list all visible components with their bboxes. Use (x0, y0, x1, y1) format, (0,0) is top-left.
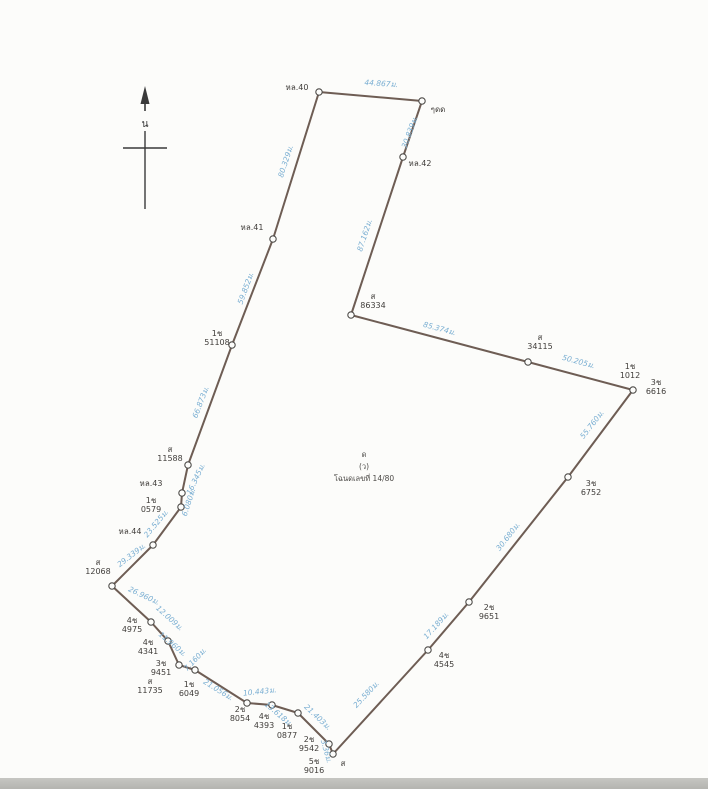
distance-label: 10.443ม. (243, 685, 277, 697)
marker-label: หล.40 (286, 83, 309, 92)
marker-label: หล.41 (241, 223, 264, 232)
survey-point (295, 710, 301, 716)
distance-label: 59.852ม. (236, 271, 256, 306)
marker-label: 4ช4975 (122, 616, 142, 634)
marker-label: ส (341, 759, 346, 768)
distance-label: 11.960ม. (157, 630, 189, 658)
marker-label: 3ช6616 (646, 378, 666, 396)
north-label: น (142, 119, 149, 130)
marker-label: 2ช9542 (299, 735, 319, 753)
survey-point (419, 98, 425, 104)
marker-label: 3ช6752 (581, 479, 601, 497)
distance-label: 55.760ม. (578, 408, 606, 440)
marker-label: 1ช1012 (620, 362, 640, 380)
parcel-boundary-lines (112, 92, 633, 754)
survey-point (400, 154, 406, 160)
marker-label: 4ช4341 (138, 638, 158, 656)
north-arrow-head-icon (141, 86, 150, 104)
survey-point (348, 312, 354, 318)
marker-label: ส86334 (360, 292, 385, 310)
distance-label: 12.009ม. (154, 604, 185, 633)
marker-label: ส12068 (85, 558, 110, 576)
distance-label: 30.680ม. (494, 520, 522, 552)
marker-label: ส11735 (137, 677, 162, 695)
survey-point (185, 462, 191, 468)
marker-label: ส11588 (157, 445, 182, 463)
marker-label: ๆดด (431, 105, 446, 114)
survey-point (109, 583, 115, 589)
scan-bottom-strip (0, 778, 708, 789)
parcel-center-annotation: ด(ว)โฉนดเลขที่ 14/80 (334, 450, 395, 483)
scanned-land-survey-page: น 44.867ม.30.839ม.87.162ม.85.374ม.50.205… (0, 0, 708, 789)
marker-label: 1ช6049 (179, 680, 199, 698)
survey-point (229, 342, 235, 348)
survey-point (466, 599, 472, 605)
parcel-center-label: ด(ว)โฉนดเลขที่ 14/80 (334, 450, 395, 483)
distance-label: 44.867ม. (364, 78, 398, 89)
survey-point (525, 359, 531, 365)
land-survey-map: น 44.867ม.30.839ม.87.162ม.85.374ม.50.205… (0, 0, 708, 789)
boundary-line (112, 92, 633, 754)
marker-label: 2ช8054 (230, 705, 250, 723)
marker-label: หล.43 (140, 479, 163, 488)
survey-point (270, 236, 276, 242)
marker-label: 1ช0877 (277, 722, 297, 740)
distance-label: 80.329ม. (276, 144, 295, 179)
north-arrow: น (123, 86, 167, 209)
survey-point (630, 387, 636, 393)
survey-point (565, 474, 571, 480)
marker-label: หล.44 (119, 527, 142, 536)
marker-label: 5ช9016 (304, 757, 324, 775)
boundary-marker-labels: หล.40ๆดดหล.42ส86334ส341151ช10123ช66163ช6… (85, 83, 666, 775)
survey-point (148, 619, 154, 625)
marker-label: 4ช4545 (434, 651, 454, 669)
marker-label: 2ช9651 (479, 603, 499, 621)
distance-label: 21.403ม. (302, 702, 333, 731)
marker-label: 4ช4393 (254, 712, 274, 730)
survey-point (425, 647, 431, 653)
marker-label: ส34115 (527, 333, 552, 351)
distance-label: 30.839ม. (400, 115, 420, 150)
distance-label: 66.873ม. (190, 385, 210, 420)
survey-points (109, 89, 636, 757)
marker-label: 1ช0579 (141, 496, 161, 514)
survey-point (316, 89, 322, 95)
distance-label: 87.162ม. (355, 218, 374, 253)
survey-point (150, 542, 156, 548)
marker-label: 3ช9451 (151, 659, 171, 677)
distance-labels: 44.867ม.30.839ม.87.162ม.85.374ม.50.205ม.… (115, 78, 605, 764)
marker-label: หล.42 (409, 159, 432, 168)
distance-label: 50.205ม. (561, 353, 596, 370)
distance-label: 21.056ม. (202, 677, 235, 702)
marker-label: 1ช51108 (204, 329, 229, 347)
distance-label: 17.189ม. (422, 610, 451, 641)
